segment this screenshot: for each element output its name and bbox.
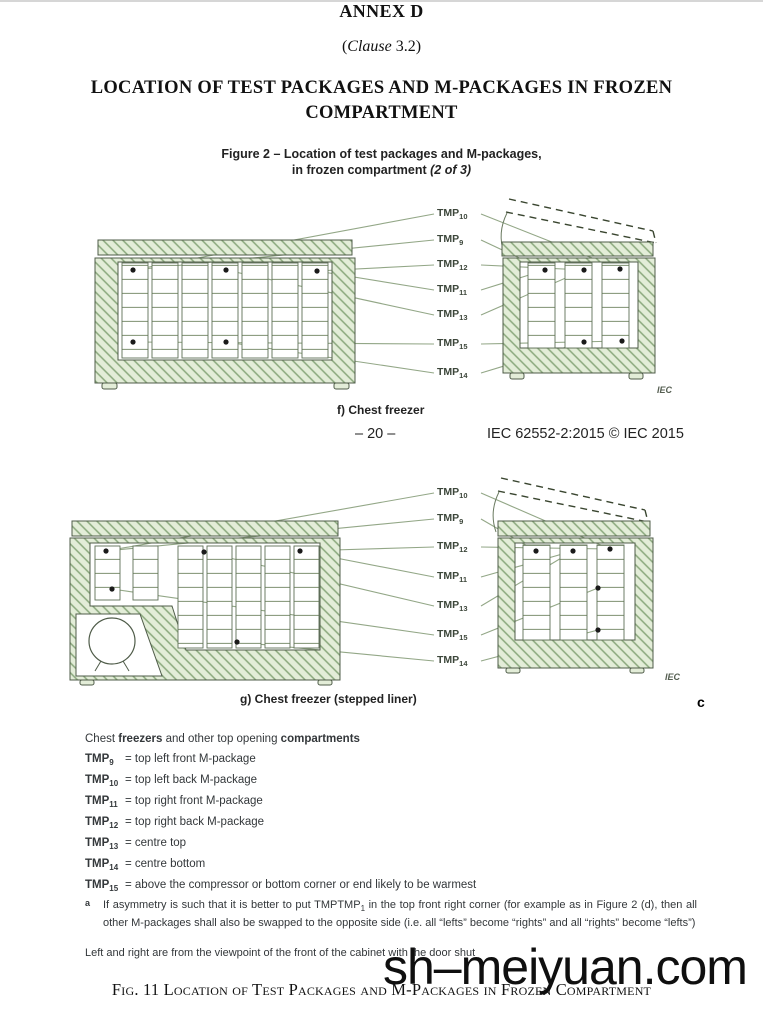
freezer-g-front-view (70, 521, 340, 685)
tmp-label-f-10: TMP10 (437, 207, 468, 221)
tmp-legend: Chest freezers and other top opening com… (85, 733, 705, 900)
legend-row-tmp12: TMP12= top right back M-package (85, 816, 705, 837)
freezer-f-front-view (95, 240, 355, 389)
document-page: { "page": { "annex_title": "ANNEX D", "c… (0, 0, 763, 1009)
tmp-label-f-9: TMP9 (437, 233, 463, 247)
tmp-label-g-13: TMP13 (437, 599, 468, 613)
tmp-label-g-15: TMP15 (437, 628, 468, 642)
legend-row-tmp15: TMP15= above the compressor or bottom co… (85, 879, 705, 900)
tmp-label-f-12: TMP12 (437, 258, 468, 272)
tmp-label-g-12: TMP12 (437, 540, 468, 554)
footnote-text: If asymmetry is such that it is better t… (103, 898, 697, 930)
iec-credit-g: IEC (665, 672, 680, 682)
document-reference: IEC 62552-2:2015 © IEC 2015 (487, 426, 684, 442)
tmp-label-f-14: TMP14 (437, 366, 468, 380)
tmp-label-f-11: TMP11 (437, 283, 467, 297)
legend-heading: Chest freezers and other top opening com… (85, 733, 705, 745)
legend-row-tmp10: TMP10= top left back M-package (85, 774, 705, 795)
legend-row-tmp14: TMP14= centre bottom (85, 858, 705, 879)
freezer-g-side-view (493, 478, 653, 673)
iec-credit-f: IEC (657, 385, 672, 395)
tmp-label-g-11: TMP11 (437, 570, 467, 584)
watermark: sh–meiyuan.com (383, 938, 747, 996)
tmp-label-f-13: TMP13 (437, 308, 468, 322)
caption-f: f) Chest freezer (337, 403, 424, 417)
tmp-label-g-10: TMP10 (437, 486, 468, 500)
stray-char: c (697, 694, 705, 710)
legend-row-tmp9: TMP9= top left front M-package (85, 753, 705, 774)
tmp-label-g-9: TMP9 (437, 512, 463, 526)
page-number: – 20 – (355, 426, 395, 442)
tmp-label-g-14: TMP14 (437, 654, 468, 668)
legend-row-tmp13: TMP13= centre top (85, 837, 705, 858)
footnote-a: a If asymmetry is such that it is better… (85, 898, 697, 930)
tmp-label-f-15: TMP15 (437, 337, 468, 351)
footnote-marker: a (85, 896, 90, 910)
freezer-f-side-view (501, 199, 656, 379)
caption-g: g) Chest freezer (stepped liner) (240, 692, 417, 706)
legend-row-tmp11: TMP11= top right front M-package (85, 795, 705, 816)
